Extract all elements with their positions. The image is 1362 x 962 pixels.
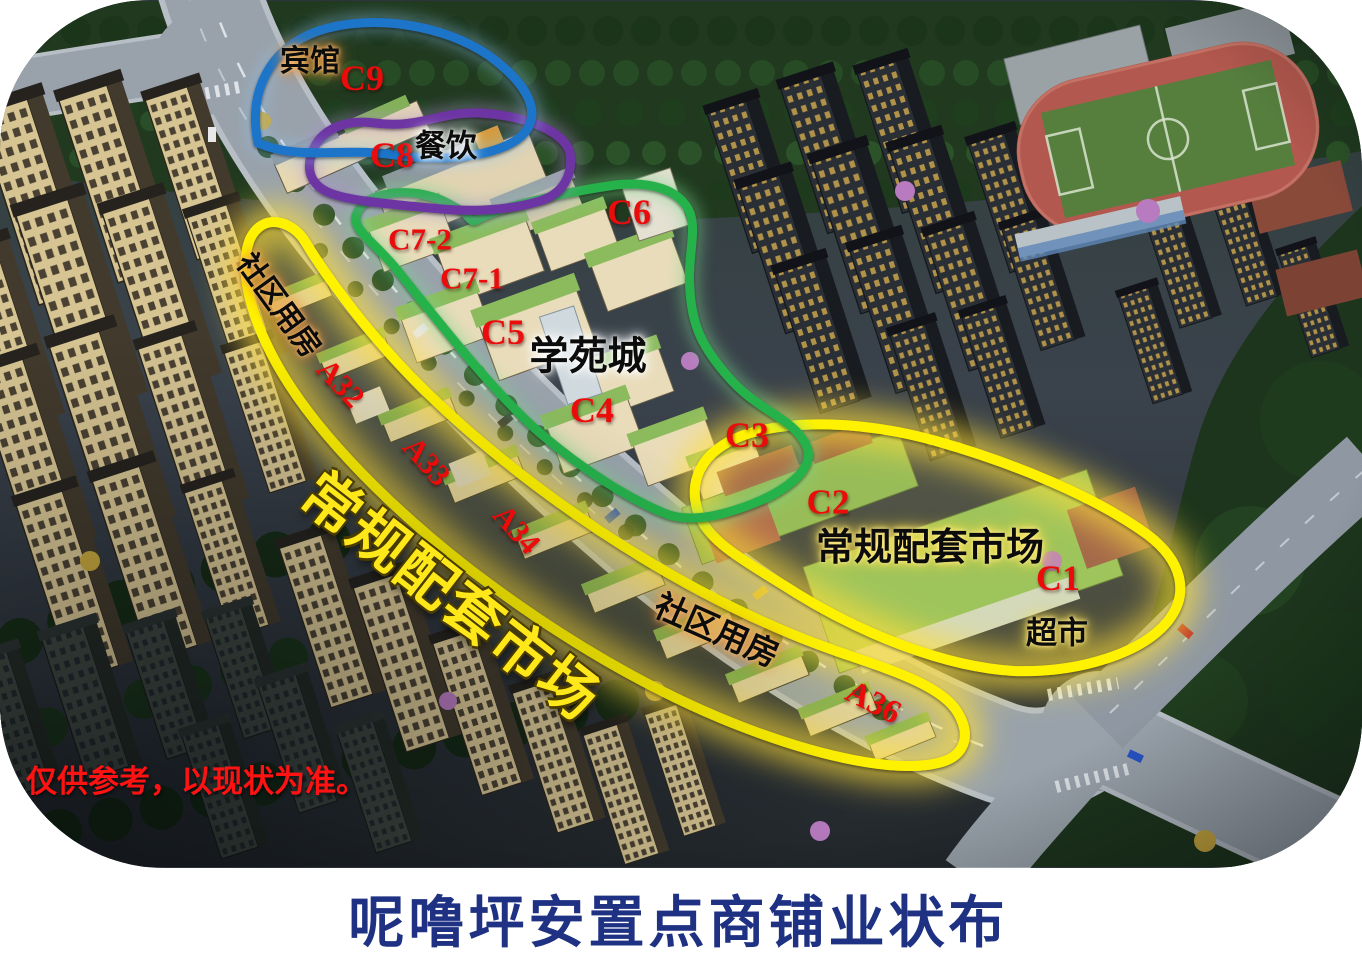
label-supermarket: 超市 [1026,618,1088,649]
label-c5: C5 [481,314,525,350]
disclaimer-text: 仅供参考，以现状为准。 [26,756,367,801]
label-c9: C9 [340,60,384,96]
label-c3: C3 [725,417,769,453]
aerial-site-plan: 宾馆 C9 C8 餐饮 C6 C7-2 C7-1 C5 学苑城 C4 C3 C2… [0,0,1362,868]
page: 宾馆 C9 C8 餐饮 C6 C7-2 C7-1 C5 学苑城 C4 C3 C2… [0,0,1362,962]
corner-shade [0,1,1362,867]
label-c4: C4 [570,392,614,428]
label-c8: C8 [370,137,414,173]
label-xueyuancheng: 学苑城 [529,338,646,377]
label-c7-2: C7-2 [388,224,452,255]
page-title: 呢噜坪安置点商铺业状布局图 [341,878,1022,962]
label-east-market: 常规配套市场 [816,529,1044,567]
label-c1: C1 [1036,560,1080,596]
label-c2: C2 [807,485,850,520]
label-hotel: 宾馆 [280,47,340,77]
label-c7-1: C7-1 [440,263,504,294]
aerial-rendering [0,0,1362,868]
label-dining: 餐饮 [415,131,477,162]
label-c6: C6 [607,194,651,230]
